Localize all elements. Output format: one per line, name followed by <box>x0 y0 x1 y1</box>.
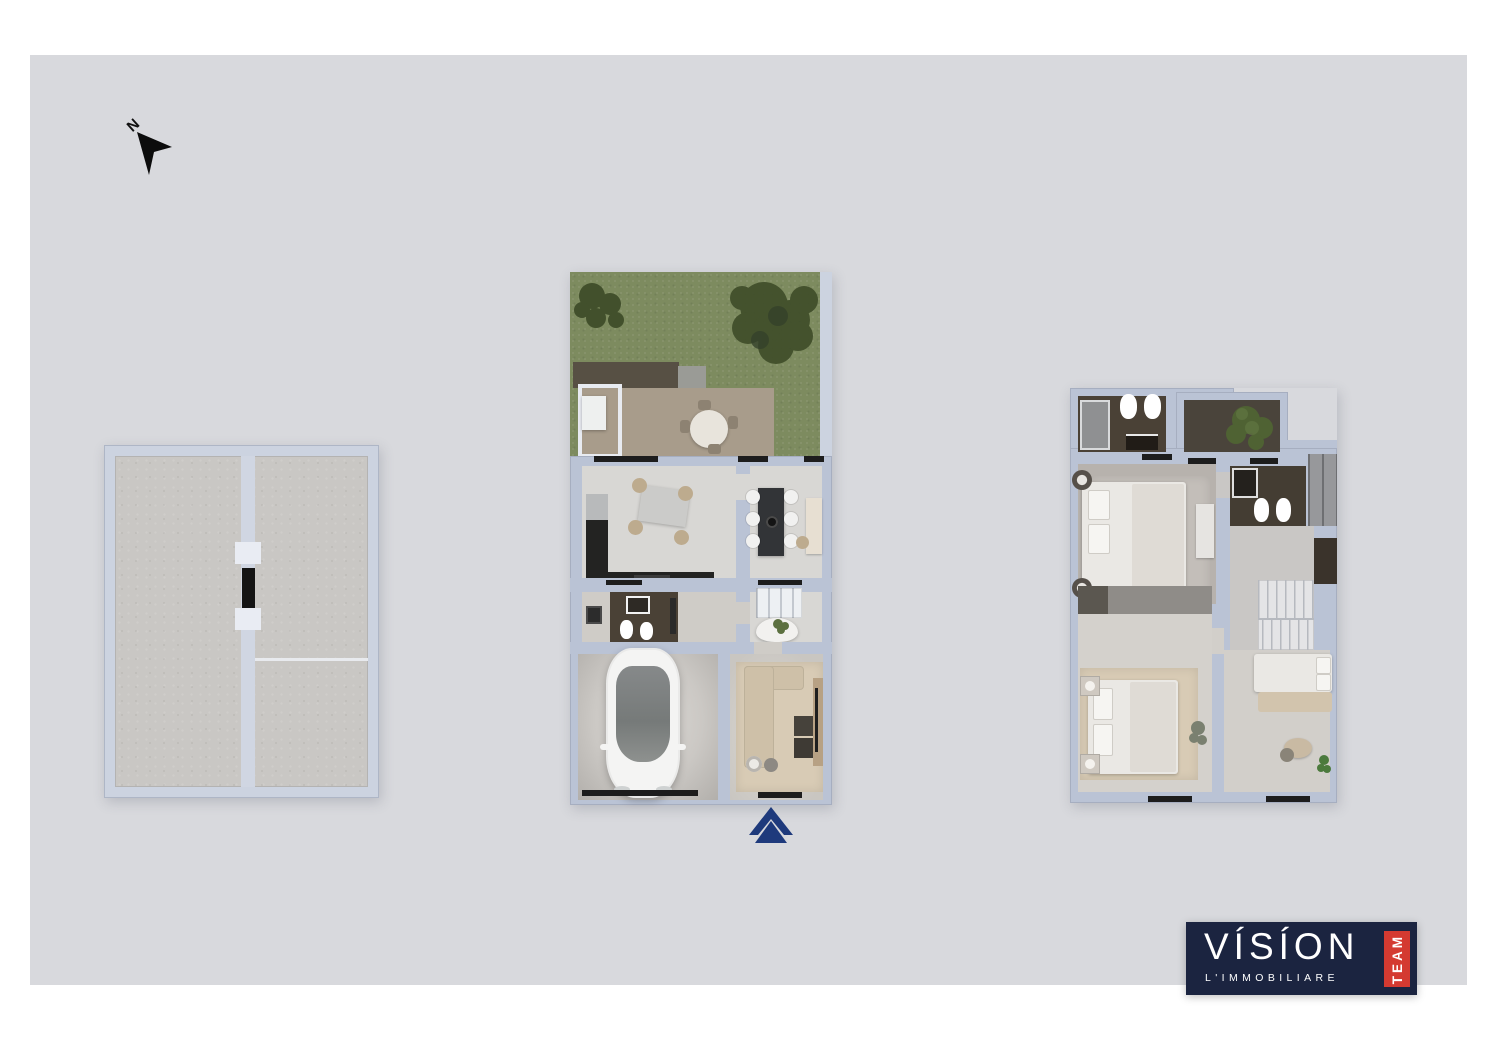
north-compass: N <box>122 115 192 195</box>
bathroom-door <box>670 598 676 634</box>
pillow <box>1316 657 1331 674</box>
tree-small-icon <box>572 278 638 344</box>
toilet <box>1120 394 1137 419</box>
sheet-background: N <box>30 55 1467 985</box>
dining-chair <box>674 530 689 545</box>
logo-team-badge: TEAM <box>1384 931 1410 987</box>
hall-plant-icon <box>770 616 792 636</box>
stool <box>784 512 798 526</box>
door-threshold <box>758 580 802 585</box>
stool <box>746 512 760 526</box>
first-floor-plan <box>1070 388 1337 803</box>
roof-plan <box>104 445 379 798</box>
terrace-chair <box>708 444 721 454</box>
island-bowl <box>766 516 778 528</box>
hallway <box>1230 526 1314 582</box>
bed-3 <box>1254 654 1332 692</box>
kitchen-counter-left <box>586 520 608 578</box>
dining-chair <box>632 478 647 493</box>
interior-wall <box>718 654 730 766</box>
shower-a <box>1080 400 1110 450</box>
bathroom-vanity <box>626 596 650 614</box>
door-opening <box>1216 472 1230 498</box>
built-in-wardrobe <box>1308 454 1337 526</box>
door-threshold <box>1250 458 1278 464</box>
floor-lamp <box>764 758 778 772</box>
floorplan-sheet: N <box>0 0 1500 1061</box>
desk-chair <box>796 536 809 549</box>
car-mirror-right <box>676 744 686 750</box>
roof-gray-section <box>678 366 706 388</box>
terrace-round-table <box>690 410 728 448</box>
dining-chair <box>678 486 693 501</box>
bidet <box>1276 498 1291 522</box>
outdoor-cabinet <box>582 396 606 430</box>
stool <box>746 490 760 504</box>
corner-closet <box>1078 586 1108 614</box>
ground-floor-plan <box>570 272 832 805</box>
bidet <box>640 622 653 640</box>
vanity-a <box>1126 434 1158 450</box>
door-threshold <box>738 456 768 462</box>
door-opening <box>754 642 782 654</box>
stair-flight-upper <box>1258 580 1314 618</box>
logo-subtitle-text: L'IMMOBILIARE <box>1205 972 1339 984</box>
logo-badge-text: TEAM <box>1390 934 1405 984</box>
door-opening <box>736 602 750 624</box>
nightstand-lamp <box>1072 470 1092 490</box>
sofa-left <box>744 666 774 768</box>
door-threshold <box>1266 796 1310 802</box>
roof-tab-lower <box>235 608 261 630</box>
lamp <box>1085 681 1095 691</box>
bidet <box>1144 394 1161 419</box>
desk-chair <box>1280 748 1294 762</box>
desk <box>806 498 822 554</box>
car <box>606 648 680 798</box>
nightstand <box>1080 754 1100 774</box>
dresser <box>1196 504 1214 558</box>
door-threshold <box>1142 454 1172 460</box>
washing-machine <box>586 606 602 624</box>
lamp <box>1085 759 1095 769</box>
floor-speaker <box>746 756 762 772</box>
door-threshold <box>1148 796 1192 802</box>
pillow <box>1316 674 1331 691</box>
logo-brand-text: VÍSÍON <box>1204 926 1359 968</box>
car-mirror-left <box>600 744 610 750</box>
agency-logo: VÍSÍON L'IMMOBILIARE TEAM <box>1186 922 1417 995</box>
terrace-chair <box>698 400 711 410</box>
bedroom-3-rug <box>1258 692 1332 712</box>
shower-b <box>1232 468 1258 498</box>
bed-1 <box>1082 482 1186 592</box>
nightstand <box>1080 676 1100 696</box>
fridge <box>586 494 608 520</box>
coffee-table <box>794 738 814 758</box>
hallway <box>1230 582 1258 650</box>
door-threshold <box>594 456 658 462</box>
tree-large-icon <box>718 272 828 384</box>
room3-plant-icon <box>1316 752 1332 778</box>
door-threshold <box>804 456 824 462</box>
stool <box>784 490 798 504</box>
blanket <box>1132 484 1184 590</box>
terrace-chair <box>680 420 690 433</box>
mid-hallway <box>678 592 736 648</box>
roof-seam <box>255 658 368 661</box>
dining-chair <box>628 520 643 535</box>
terrace-chair <box>728 416 738 429</box>
stair-flight-lower <box>1262 620 1314 650</box>
bedroom-plant-icon <box>1188 718 1208 750</box>
stool <box>746 534 760 548</box>
toilet <box>620 620 633 639</box>
hall-wardrobe <box>756 588 802 618</box>
pillow <box>1088 490 1110 520</box>
tv-screen <box>815 688 818 752</box>
roof-tab-upper <box>235 542 261 564</box>
blanket <box>1130 682 1176 772</box>
door-opening <box>1212 628 1224 654</box>
pillow <box>1093 724 1113 756</box>
toilet <box>1254 498 1269 522</box>
car-roof-glass <box>616 666 670 762</box>
chimney <box>242 568 255 608</box>
staircase <box>1258 580 1314 650</box>
entry-door-threshold <box>758 792 802 798</box>
interior-wall <box>570 642 832 654</box>
pillow <box>1088 524 1110 554</box>
door-threshold <box>606 580 642 585</box>
north-arrow-icon <box>134 129 178 183</box>
entrance-arrow-icon <box>748 806 794 846</box>
garage-door-threshold <box>582 790 698 796</box>
balcony-plant-icon <box>1216 398 1280 452</box>
coffee-table <box>794 716 814 736</box>
bed-2 <box>1088 680 1178 774</box>
